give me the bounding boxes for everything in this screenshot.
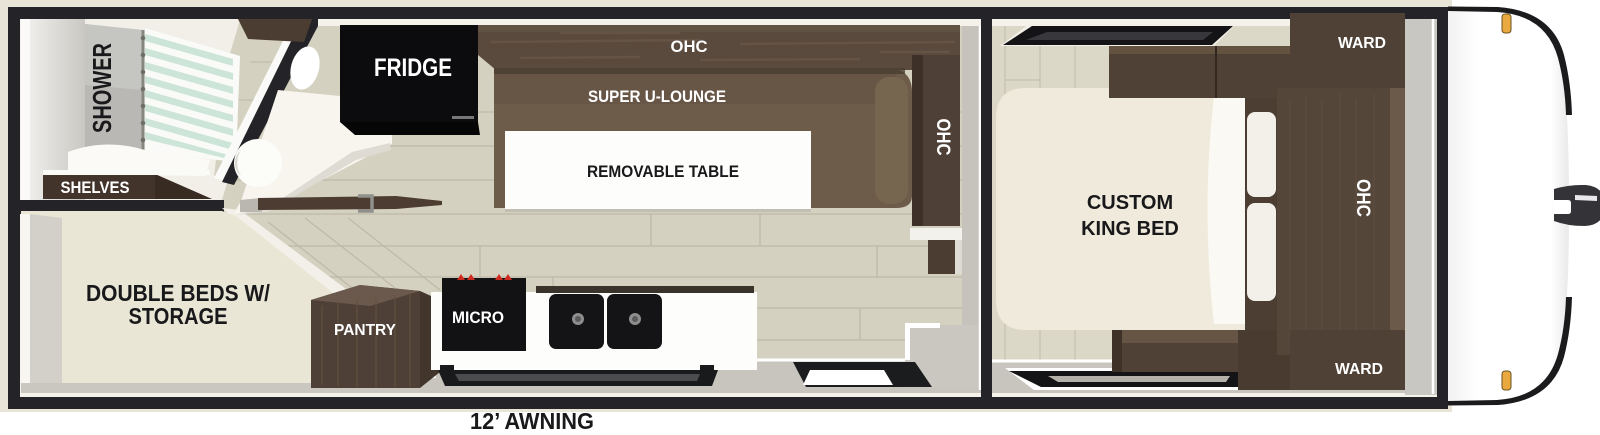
svg-text:SHELVES: SHELVES	[61, 178, 130, 197]
svg-text:WARD: WARD	[1338, 35, 1386, 52]
svg-text:WARD: WARD	[1335, 361, 1383, 378]
svg-text:FRIDGE: FRIDGE	[374, 54, 452, 82]
svg-text:OHC: OHC	[671, 37, 708, 56]
svg-text:STORAGE: STORAGE	[129, 303, 228, 329]
svg-text:REMOVABLE TABLE: REMOVABLE TABLE	[587, 162, 739, 181]
svg-text:MICRO: MICRO	[452, 308, 504, 327]
svg-text:OHC: OHC	[932, 119, 953, 156]
svg-text:CUSTOM: CUSTOM	[1087, 192, 1173, 214]
svg-text:PANTRY: PANTRY	[334, 322, 396, 339]
svg-text:12’ AWNING: 12’ AWNING	[470, 408, 594, 434]
svg-text:KING BED: KING BED	[1081, 218, 1179, 240]
svg-text:OHC: OHC	[1352, 179, 1373, 217]
svg-text:SHOWER: SHOWER	[87, 43, 117, 133]
svg-text:SUPER U-LOUNGE: SUPER U-LOUNGE	[588, 87, 726, 106]
